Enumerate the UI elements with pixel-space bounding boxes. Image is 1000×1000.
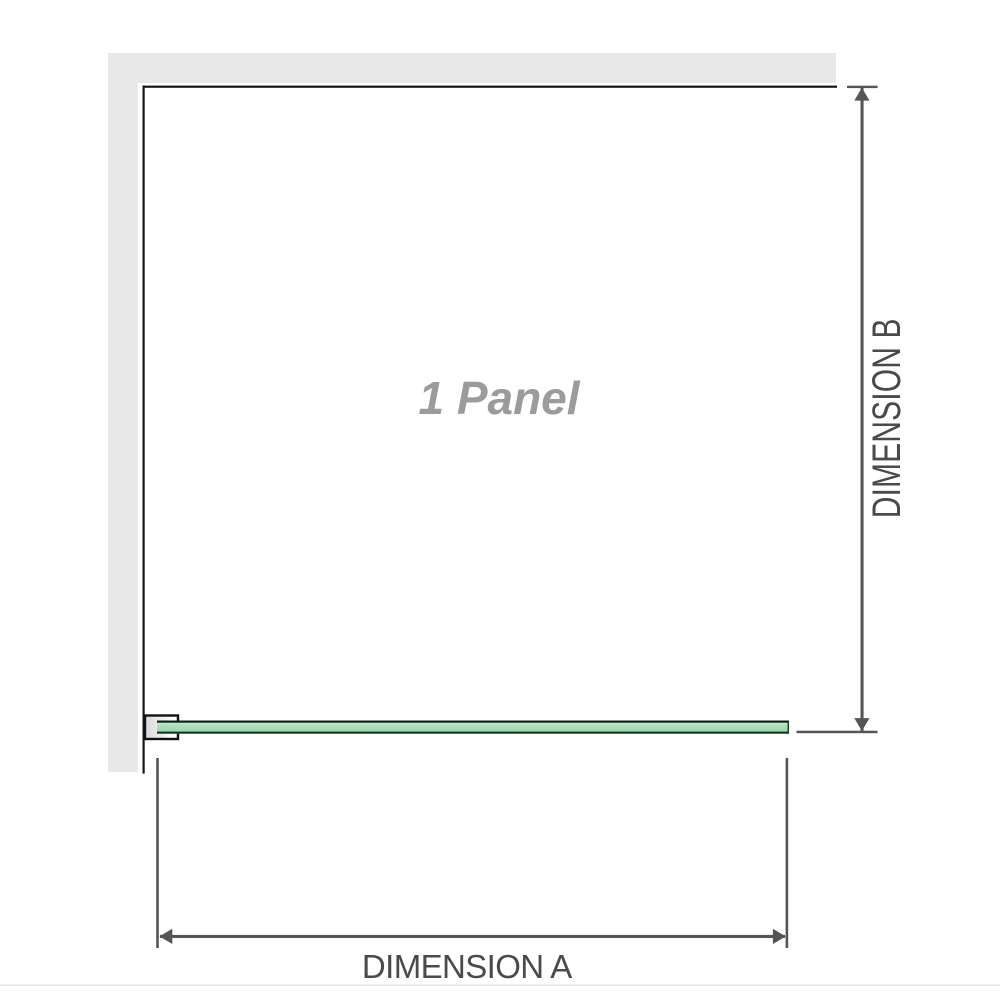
svg-text:DIMENSION B: DIMENSION B [865,318,909,518]
svg-text:DIMENSION A: DIMENSION A [362,948,572,985]
svg-text:1 Panel: 1 Panel [418,372,580,424]
